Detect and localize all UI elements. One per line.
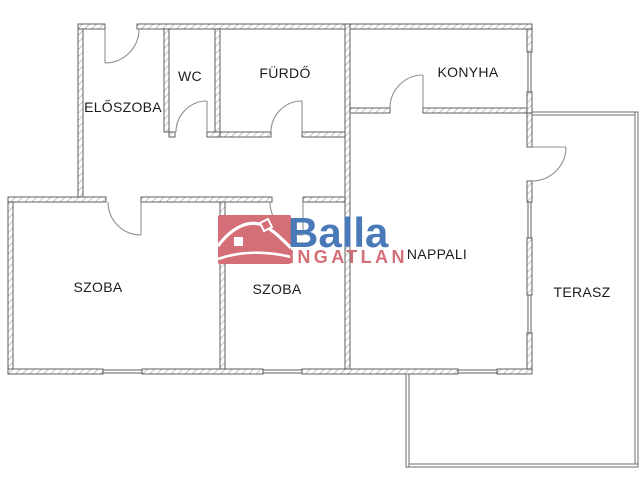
- room-label-nappali: NAPPALI: [407, 246, 467, 262]
- house-icon: [218, 215, 291, 264]
- room-label-eloszoba: ELŐSZOBA: [84, 99, 162, 115]
- wall-segment: [8, 369, 103, 374]
- wall-segment: [302, 369, 458, 374]
- wall-segment: [350, 108, 390, 113]
- terrace-wall-segment: [532, 112, 638, 115]
- wall-segment: [527, 29, 532, 52]
- floorplan-drawing: ELŐSZOBAWCFÜRDŐKONYHANAPPALISZOBASZOBATE…: [0, 0, 640, 480]
- door-swing-arc: [390, 75, 423, 108]
- window-symbol: [458, 370, 497, 373]
- logo-sub-text: INGATLAN: [289, 247, 408, 267]
- wall-segment: [141, 197, 272, 202]
- terrace-wall-segment: [635, 112, 638, 467]
- room-label-wc: WC: [178, 68, 202, 84]
- wall-segment: [527, 238, 532, 295]
- agency-logo: BallaINGATLAN: [218, 209, 408, 267]
- window-symbol: [103, 370, 142, 373]
- furdo-door: [271, 101, 302, 132]
- window-symbol: [263, 370, 302, 373]
- wall-segment: [164, 29, 169, 132]
- wall-segment: [207, 132, 220, 137]
- window-symbol: [528, 202, 531, 238]
- terasz-door: [532, 147, 566, 181]
- door-swing-arc: [105, 29, 139, 63]
- wall-segment: [527, 333, 532, 369]
- wall-segment: [78, 24, 105, 29]
- wall-segment: [220, 132, 271, 137]
- wall-segment: [169, 132, 175, 137]
- door-swing-arc: [271, 101, 302, 132]
- wall-segment: [8, 202, 13, 374]
- konyha-door: [390, 75, 423, 108]
- room-label-szoba-2: SZOBA: [253, 281, 302, 297]
- wall-segment: [303, 197, 345, 202]
- wall-segment: [345, 24, 350, 374]
- room-label-konyha: KONYHA: [438, 64, 499, 80]
- wall-segment: [137, 24, 532, 29]
- wc-door: [176, 101, 207, 132]
- room-label-szoba-1: SZOBA: [74, 279, 123, 295]
- window-symbol: [528, 52, 531, 92]
- wall-segment: [302, 132, 345, 137]
- room-label-furdo: FÜRDŐ: [259, 64, 310, 81]
- window-symbol: [528, 295, 531, 333]
- door-swing-arc: [176, 101, 207, 132]
- entrance-door: [105, 29, 139, 63]
- terrace-wall-segment: [406, 374, 409, 467]
- wall-segment: [527, 92, 532, 113]
- wall-segment: [142, 369, 263, 374]
- door-swing-arc: [532, 147, 566, 181]
- szoba-1-door: [108, 202, 141, 235]
- room-label-terasz: TERASZ: [553, 284, 610, 300]
- terrace-wall-segment: [406, 464, 638, 467]
- wall-segment: [497, 369, 532, 374]
- wall-segment: [423, 108, 532, 113]
- wall-segment: [78, 29, 83, 202]
- wall-segment: [215, 29, 220, 132]
- floorplan-page: ELŐSZOBAWCFÜRDŐKONYHANAPPALISZOBASZOBATE…: [0, 0, 640, 480]
- wall-segment: [527, 113, 532, 147]
- door-swing-arc: [108, 202, 141, 235]
- wall-segment: [8, 197, 106, 202]
- wall-segment: [527, 181, 532, 202]
